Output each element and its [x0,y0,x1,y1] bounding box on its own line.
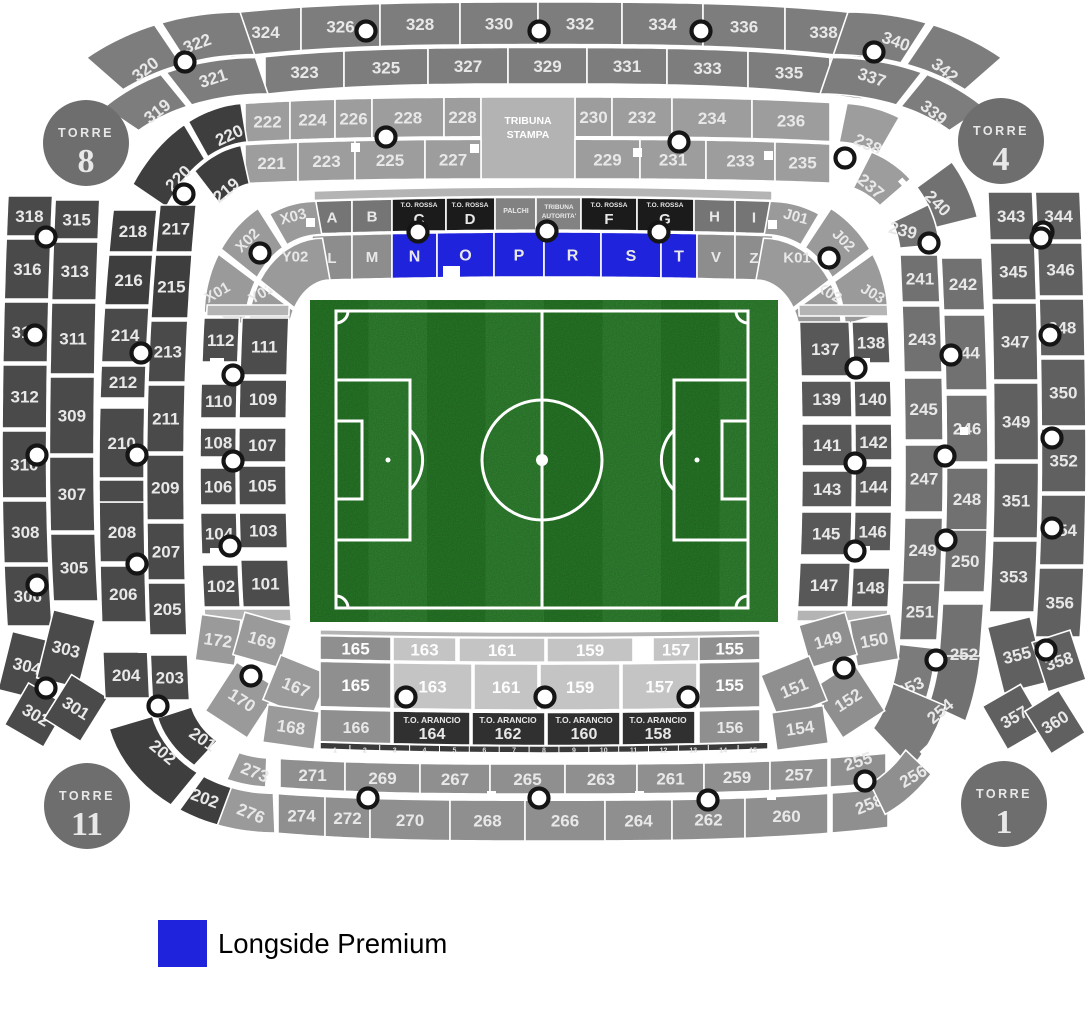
svg-text:329: 329 [533,57,561,76]
svg-text:139: 139 [812,390,840,409]
svg-text:PALCHI: PALCHI [503,208,529,215]
svg-text:D: D [465,211,476,228]
svg-text:10: 10 [600,748,608,755]
svg-text:T.O. ROSSA: T.O. ROSSA [591,202,628,209]
svg-text:F: F [604,211,613,228]
svg-text:4: 4 [423,748,427,755]
svg-text:356: 356 [1046,594,1074,613]
svg-text:334: 334 [648,15,677,34]
svg-text:248: 248 [953,490,981,509]
svg-text:336: 336 [730,18,758,37]
svg-text:263: 263 [587,770,615,789]
svg-text:274: 274 [287,806,316,825]
svg-text:264: 264 [624,811,653,830]
svg-text:159: 159 [566,678,594,697]
svg-text:225: 225 [376,151,404,170]
svg-text:101: 101 [251,575,279,594]
svg-text:Y02: Y02 [282,248,309,265]
svg-text:315: 315 [62,211,90,230]
svg-text:H: H [709,208,720,225]
svg-text:N: N [409,248,421,265]
svg-text:102: 102 [207,577,235,596]
svg-text:2: 2 [363,748,367,755]
svg-text:212: 212 [109,373,137,392]
svg-text:269: 269 [368,769,396,788]
svg-text:270: 270 [396,811,424,830]
svg-text:259: 259 [723,768,751,787]
svg-text:228: 228 [394,109,422,128]
svg-text:235: 235 [788,154,816,173]
svg-text:5: 5 [452,748,456,755]
svg-text:147: 147 [810,576,838,595]
svg-text:208: 208 [108,523,136,542]
svg-text:206: 206 [109,585,137,604]
svg-text:261: 261 [656,770,684,789]
svg-text:331: 331 [613,57,641,76]
svg-text:228: 228 [448,108,476,127]
svg-text:163: 163 [410,641,438,660]
svg-text:257: 257 [785,766,813,785]
svg-text:P: P [514,247,525,264]
svg-text:9: 9 [572,748,576,755]
svg-text:157: 157 [662,640,690,659]
svg-text:268: 268 [473,812,501,831]
svg-text:236: 236 [777,111,805,130]
svg-text:110: 110 [205,392,232,411]
svg-text:A: A [327,209,338,226]
svg-text:142: 142 [859,433,887,452]
svg-text:214: 214 [111,326,140,345]
svg-text:O: O [459,248,471,265]
svg-text:138: 138 [857,334,885,353]
svg-text:223: 223 [312,152,340,171]
svg-text:215: 215 [157,278,185,297]
svg-text:111: 111 [251,338,278,357]
svg-text:L: L [327,250,336,267]
svg-text:233: 233 [726,152,754,171]
svg-text:353: 353 [999,568,1027,587]
svg-text:218: 218 [119,222,147,241]
svg-text:148: 148 [856,579,884,598]
svg-text:349: 349 [1002,413,1030,432]
svg-text:249: 249 [909,541,937,560]
svg-text:T.O. ARANCIO: T.O. ARANCIO [629,715,687,725]
svg-text:3: 3 [393,748,397,755]
svg-text:B: B [367,208,378,225]
svg-text:140: 140 [859,390,887,409]
svg-text:343: 343 [997,207,1025,226]
svg-text:226: 226 [339,110,367,129]
svg-text:STAMPA: STAMPA [507,129,550,141]
svg-text:T.O. ARANCIO: T.O. ARANCIO [555,715,613,725]
svg-text:266: 266 [551,812,579,831]
svg-text:204: 204 [112,666,141,685]
svg-text:T: T [674,249,684,266]
svg-text:312: 312 [11,388,39,407]
svg-text:207: 207 [152,543,180,562]
svg-text:TORRE: TORRE [976,787,1032,801]
svg-text:1: 1 [333,748,337,755]
svg-text:160: 160 [571,726,598,743]
svg-text:141: 141 [813,436,841,455]
svg-text:K01: K01 [783,249,811,266]
svg-text:346: 346 [1046,261,1074,280]
svg-text:309: 309 [58,407,86,426]
svg-text:316: 316 [13,260,41,279]
svg-text:107: 107 [248,436,276,455]
svg-text:333: 333 [693,59,721,78]
svg-text:1: 1 [996,804,1013,841]
svg-text:231: 231 [659,151,687,170]
svg-text:S: S [626,248,637,265]
svg-text:311: 311 [59,330,86,349]
svg-text:347: 347 [1001,333,1029,352]
svg-text:260: 260 [772,807,800,826]
svg-text:234: 234 [698,109,727,128]
svg-text:227: 227 [439,150,467,169]
svg-text:318: 318 [15,207,43,226]
svg-text:262: 262 [694,810,722,829]
svg-text:267: 267 [441,770,469,789]
svg-text:105: 105 [248,477,276,496]
svg-text:TORRE: TORRE [973,124,1029,138]
svg-text:T.O. ROSSA: T.O. ROSSA [401,202,438,209]
svg-text:332: 332 [566,15,594,34]
svg-text:324: 324 [251,23,280,42]
svg-text:265: 265 [513,770,541,789]
svg-text:345: 345 [999,263,1027,282]
svg-text:8: 8 [78,143,95,180]
svg-text:TORRE: TORRE [59,789,115,803]
svg-text:156: 156 [717,720,744,737]
svg-text:Longside Premium: Longside Premium [218,928,447,959]
svg-text:168: 168 [276,716,307,739]
svg-text:109: 109 [249,390,277,409]
svg-text:327: 327 [454,57,482,76]
svg-text:165: 165 [341,676,369,695]
svg-text:326: 326 [326,18,354,37]
svg-text:4: 4 [993,141,1010,178]
svg-text:307: 307 [58,485,86,504]
svg-text:146: 146 [859,523,887,542]
svg-text:165: 165 [341,640,369,659]
svg-text:323: 323 [290,63,318,82]
svg-text:108: 108 [204,434,232,453]
svg-text:103: 103 [249,522,277,541]
svg-text:350: 350 [1049,384,1077,403]
svg-text:TRIBUNA: TRIBUNA [544,204,574,211]
svg-text:313: 313 [61,262,89,281]
svg-text:161: 161 [492,678,520,697]
svg-text:T.O. ROSSA: T.O. ROSSA [647,202,684,209]
svg-text:7: 7 [512,748,516,755]
svg-text:159: 159 [576,641,604,660]
svg-text:325: 325 [372,59,400,78]
svg-text:330: 330 [485,15,513,34]
svg-text:AUTORITA': AUTORITA' [542,213,577,220]
svg-text:216: 216 [115,271,143,290]
svg-text:172: 172 [203,629,234,652]
svg-text:15: 15 [749,748,757,755]
svg-text:213: 213 [154,343,182,362]
svg-text:T.O. ARANCIO: T.O. ARANCIO [479,715,537,725]
svg-text:161: 161 [488,641,516,660]
svg-text:272: 272 [333,809,361,828]
svg-text:250: 250 [951,552,979,571]
svg-text:166: 166 [343,720,370,737]
svg-text:137: 137 [811,340,839,359]
svg-text:M: M [366,249,379,266]
svg-text:162: 162 [495,726,522,743]
svg-text:271: 271 [298,766,326,785]
svg-text:11: 11 [630,748,638,755]
svg-text:T.O. ARANCIO: T.O. ARANCIO [403,715,461,725]
svg-text:158: 158 [645,726,672,743]
svg-text:224: 224 [298,111,327,130]
svg-text:245: 245 [910,400,938,419]
svg-text:328: 328 [406,15,434,34]
svg-text:11: 11 [71,806,103,843]
svg-text:335: 335 [775,64,803,83]
svg-text:112: 112 [207,331,234,350]
svg-text:155: 155 [715,676,743,695]
svg-text:14: 14 [719,748,727,755]
svg-text:247: 247 [910,470,938,489]
svg-text:230: 230 [579,108,607,127]
svg-text:T.O. ROSSA: T.O. ROSSA [452,202,489,209]
svg-text:TRIBUNA: TRIBUNA [504,115,552,127]
svg-text:163: 163 [418,677,446,696]
svg-text:106: 106 [204,478,232,497]
svg-text:145: 145 [812,525,840,544]
svg-text:308: 308 [11,523,39,542]
svg-text:V: V [711,249,721,266]
svg-text:143: 143 [813,480,841,499]
svg-text:144: 144 [859,478,888,497]
svg-text:232: 232 [628,108,656,127]
svg-text:Z: Z [749,250,758,267]
svg-text:I: I [752,209,756,226]
svg-text:TORRE: TORRE [58,126,114,140]
svg-text:164: 164 [419,726,446,743]
svg-text:209: 209 [151,479,179,498]
svg-text:251: 251 [906,603,934,622]
svg-text:13: 13 [689,748,697,755]
svg-text:155: 155 [715,640,743,659]
svg-text:205: 205 [153,600,181,619]
svg-text:217: 217 [162,220,190,239]
svg-text:221: 221 [257,154,285,173]
svg-text:154: 154 [785,717,816,740]
svg-text:6: 6 [482,748,486,755]
svg-text:252: 252 [950,645,978,664]
svg-text:12: 12 [660,748,668,755]
svg-text:243: 243 [908,330,936,349]
svg-text:229: 229 [593,150,621,169]
svg-text:351: 351 [1002,492,1030,511]
svg-text:305: 305 [60,559,88,578]
svg-text:338: 338 [809,23,837,42]
svg-text:352: 352 [1050,452,1078,471]
svg-text:222: 222 [253,113,281,132]
svg-text:R: R [567,247,579,264]
svg-text:8: 8 [542,748,546,755]
svg-text:157: 157 [645,677,673,696]
svg-text:241: 241 [906,270,934,289]
svg-text:203: 203 [156,669,184,688]
svg-text:242: 242 [949,275,977,294]
svg-text:211: 211 [152,410,179,429]
